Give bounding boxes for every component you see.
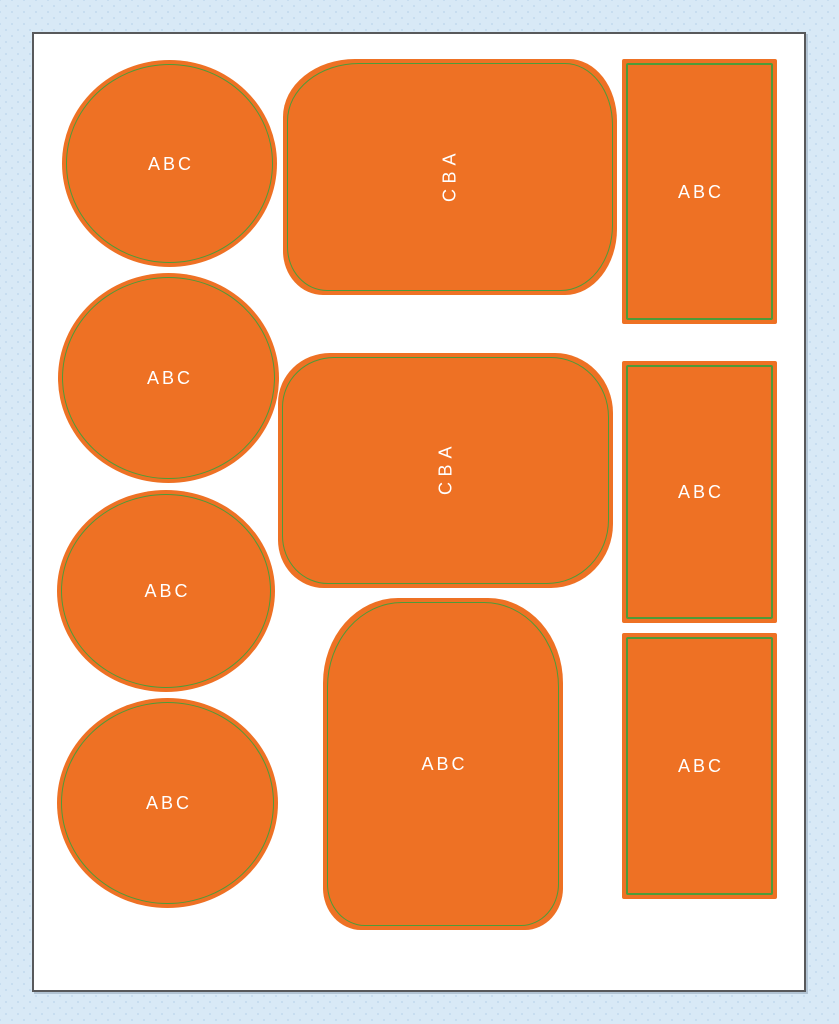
blob-shape-1[interactable]: ABC — [283, 59, 617, 295]
design-sheet: ABC ABC ABC ABC ABC ABC ABC — [32, 32, 806, 992]
circle-shape-4[interactable]: ABC — [57, 698, 278, 908]
rect-shape-2[interactable]: ABC — [622, 361, 777, 623]
shape-label: ABC — [675, 757, 724, 775]
shape-label: ABC — [418, 755, 467, 773]
shape-label: ABC — [145, 155, 194, 173]
circle-shape-1[interactable]: ABC — [62, 60, 277, 267]
rect-shape-1[interactable]: ABC — [622, 59, 777, 324]
shape-label: ABC — [675, 483, 724, 501]
blob-shape-3[interactable]: ABC — [323, 598, 563, 930]
shape-label: ABC — [141, 582, 190, 600]
shape-label-vertical: ABC — [441, 152, 459, 203]
blob-shape-2[interactable]: ABC — [278, 353, 613, 588]
circle-shape-3[interactable]: ABC — [57, 490, 275, 692]
shape-label: ABC — [143, 794, 192, 812]
shape-label: ABC — [675, 183, 724, 201]
canvas-background: ABC ABC ABC ABC ABC ABC ABC — [0, 0, 839, 1024]
shape-label-vertical: ABC — [437, 445, 455, 496]
rect-shape-3[interactable]: ABC — [622, 633, 777, 899]
shape-label: ABC — [144, 369, 193, 387]
circle-shape-2[interactable]: ABC — [58, 273, 279, 483]
